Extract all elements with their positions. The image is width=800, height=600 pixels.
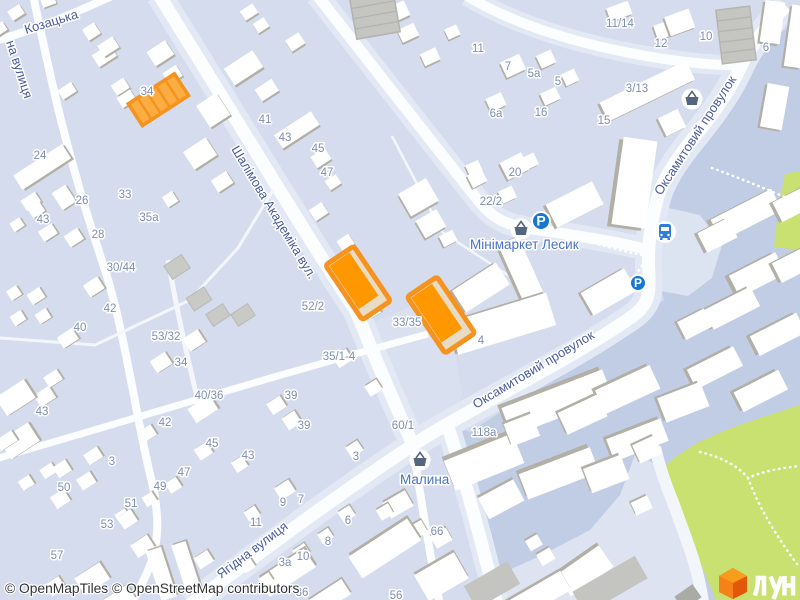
svg-text:3а: 3а <box>279 557 292 569</box>
svg-text:45: 45 <box>206 438 219 450</box>
svg-text:33/35: 33/35 <box>393 317 422 329</box>
svg-text:43: 43 <box>242 450 255 462</box>
svg-text:P: P <box>634 276 642 290</box>
svg-text:6: 6 <box>345 515 351 527</box>
svg-text:41: 41 <box>259 114 272 126</box>
svg-text:7: 7 <box>505 61 511 73</box>
svg-text:39: 39 <box>285 390 298 402</box>
svg-text:30/44: 30/44 <box>107 262 136 274</box>
svg-text:10: 10 <box>297 551 310 563</box>
svg-text:34: 34 <box>175 357 188 369</box>
svg-text:15: 15 <box>598 115 611 127</box>
svg-text:40/36: 40/36 <box>195 390 224 402</box>
svg-text:42: 42 <box>159 417 172 429</box>
svg-text:39: 39 <box>298 420 311 432</box>
svg-text:40: 40 <box>74 322 87 334</box>
svg-text:43: 43 <box>279 132 292 144</box>
svg-text:3/13: 3/13 <box>626 83 648 95</box>
svg-text:45: 45 <box>312 143 325 155</box>
svg-text:47: 47 <box>178 467 191 479</box>
svg-text:53/32: 53/32 <box>152 331 181 343</box>
svg-text:26: 26 <box>76 195 89 207</box>
svg-text:34: 34 <box>141 86 154 98</box>
svg-text:10: 10 <box>700 31 713 43</box>
svg-text:3: 3 <box>109 456 115 468</box>
svg-text:20: 20 <box>509 167 522 179</box>
svg-text:6а: 6а <box>490 108 503 120</box>
svg-text:11: 11 <box>472 43 484 55</box>
svg-text:28: 28 <box>92 229 105 241</box>
svg-text:35а: 35а <box>139 212 159 224</box>
svg-text:7: 7 <box>298 494 304 506</box>
svg-text:57: 57 <box>51 550 64 562</box>
svg-text:P: P <box>536 213 545 229</box>
svg-text:43: 43 <box>37 214 50 226</box>
svg-text:24: 24 <box>34 150 47 162</box>
svg-text:43: 43 <box>36 406 49 418</box>
svg-text:8: 8 <box>325 536 331 548</box>
svg-text:11: 11 <box>250 517 262 529</box>
svg-text:51: 51 <box>125 498 138 510</box>
svg-text:22/2: 22/2 <box>480 196 502 208</box>
svg-text:47: 47 <box>321 167 334 179</box>
svg-text:11/14: 11/14 <box>606 18 635 30</box>
svg-text:50: 50 <box>58 482 71 494</box>
svg-text:42: 42 <box>104 303 117 315</box>
svg-text:3: 3 <box>353 451 359 463</box>
svg-text:5а: 5а <box>528 68 541 80</box>
svg-text:35/1-4: 35/1-4 <box>323 351 356 363</box>
svg-text:33: 33 <box>119 189 132 201</box>
svg-text:49: 49 <box>154 481 167 493</box>
svg-text:12: 12 <box>655 38 668 50</box>
svg-text:16: 16 <box>535 107 548 119</box>
svg-text:© OpenMapTiles © OpenStreetMap: © OpenMapTiles © OpenStreetMap contribut… <box>5 581 299 596</box>
svg-text:Мінімаркет Лесик: Мінімаркет Лесик <box>470 237 579 252</box>
svg-text:9: 9 <box>280 497 286 509</box>
svg-text:5: 5 <box>555 76 561 88</box>
svg-text:118а: 118а <box>472 427 497 439</box>
svg-text:Малина: Малина <box>400 472 450 487</box>
svg-text:52/2: 52/2 <box>302 301 324 313</box>
svg-text:53: 53 <box>101 519 114 531</box>
svg-text:6: 6 <box>763 42 769 54</box>
svg-text:66: 66 <box>431 526 444 538</box>
svg-text:4: 4 <box>478 335 485 347</box>
svg-text:60/1: 60/1 <box>392 420 414 432</box>
svg-text:56: 56 <box>390 590 403 600</box>
